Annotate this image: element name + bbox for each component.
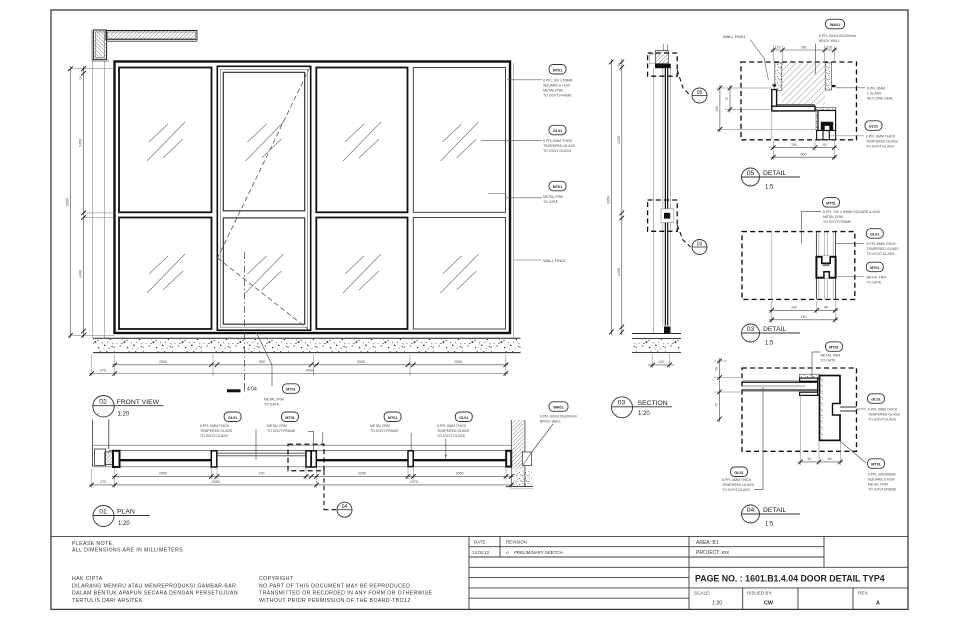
svg-text:FRONT VIEW: FRONT VIEW [117,399,160,406]
svg-text:1970: 1970 [410,480,418,484]
svg-text:TO GOVT.GLASS: TO GOVT.GLASS [722,488,751,492]
svg-text:METAL FRM: METAL FRM [868,482,888,486]
svg-text:PROJECT: xxx: PROJECT: xxx [696,550,730,556]
svg-text:275: 275 [100,369,106,373]
svg-text:BRICK WALL: BRICK WALL [540,419,561,423]
svg-text:14.02.12: 14.02.12 [472,550,490,555]
svg-text:100: 100 [791,306,797,310]
svg-text:1450: 1450 [79,139,83,147]
svg-text:275: 275 [100,480,106,484]
svg-text:40: 40 [824,306,828,310]
svg-text:DALAM BENTUK APAPUN SECARA DE: DALAM BENTUK APAPUN SECARA DENGAN PERSET… [72,591,238,597]
svg-text:TO GATE: TO GATE [867,281,883,285]
svg-text:MT01: MT01 [286,388,295,392]
svg-text:50: 50 [715,367,719,371]
svg-text:790: 790 [259,472,265,476]
svg-text:6 PFL 6MM THICK: 6 PFL 6MM THICK [868,407,898,411]
svg-text:TEMPERED GLASS: TEMPERED GLASS [867,247,900,251]
svg-text:METAL FRM: METAL FRM [823,215,843,219]
svg-text:TO GOVT.FRAME: TO GOVT.FRAME [823,220,852,224]
svg-text:MT01: MT01 [870,266,879,270]
svg-text:ALL DIMENSIONS ARE IN MILLIMET: ALL DIMENSIONS ARE IN MILLIMETERS [72,547,183,553]
svg-text:6 PFL 100x50MM: 6 PFL 100x50MM [868,472,896,476]
svg-text:140: 140 [658,360,664,364]
svg-text:TO GOVT.GLASS: TO GOVT.GLASS [866,144,895,148]
svg-text:TO GATE: TO GATE [543,200,559,204]
svg-text:1400: 1400 [79,270,83,278]
svg-text:METAL FRM: METAL FRM [543,88,563,92]
svg-text:TERTULIS DARI ARSITEK: TERTULIS DARI ARSITEK [72,598,143,604]
svg-text:45: 45 [828,457,832,461]
svg-text:SQUARE & HLW: SQUARE & HLW [543,83,570,87]
svg-text:40: 40 [808,457,812,461]
svg-text:6 PFL 600x100x200mm: 6 PFL 600x100x200mm [540,414,577,418]
svg-text:A: A [506,550,509,555]
svg-text:04: 04 [747,507,755,514]
svg-text:WA01: WA01 [553,406,563,410]
svg-text:6 PFL 600x100x200mm: 6 PFL 600x100x200mm [819,34,856,38]
svg-text:PRELIMINARY SKETCH: PRELIMINARY SKETCH [514,550,563,555]
svg-text:140: 140 [801,315,807,319]
svg-text:03: 03 [747,326,755,333]
svg-text:SECTION: SECTION [638,400,668,407]
svg-text:DETAIL: DETAIL [763,326,787,333]
svg-text:METAL FRM: METAL FRM [543,195,563,199]
svg-text:6 PFL 100 x 50MM: 6 PFL 100 x 50MM [543,78,573,82]
svg-text:WALL FIN01: WALL FIN01 [723,34,746,39]
svg-text:2950: 2950 [606,196,610,204]
svg-text:TEMPERED GLASS: TEMPERED GLASS [200,429,233,433]
svg-text:TO GOVT.GLASS: TO GOVT.GLASS [200,434,229,438]
svg-text:9050: 9050 [306,369,314,373]
svg-text:REVISION: REVISION [506,540,527,545]
svg-text:METAL FRM: METAL FRM [867,276,887,280]
svg-text:1:20: 1:20 [118,521,130,527]
svg-text:TEMPERED GLASS: TEMPERED GLASS [868,412,901,416]
svg-text:METAL FRM: METAL FRM [267,424,287,428]
svg-text:MT01: MT01 [826,201,835,205]
svg-text:L GLASS: L GLASS [867,91,882,95]
svg-text:TO GOVT.GLASS: TO GOVT.GLASS [437,434,466,438]
svg-text:CW: CW [764,601,774,607]
svg-text:DATE: DATE [474,540,485,545]
svg-text:1:5: 1:5 [765,522,774,528]
svg-text:DILARANG MENIRU ATAU MENREPROD: DILARANG MENIRU ATAU MENREPRODUKSI GAMBA… [72,583,236,589]
svg-text:DETAIL: DETAIL [763,507,787,514]
svg-text:TO GOVT.GLASS: TO GOVT.GLASS [867,252,896,256]
svg-text:TO GATE: TO GATE [264,403,280,407]
svg-text:1:20: 1:20 [118,411,130,417]
svg-text:MT01: MT01 [829,346,838,350]
svg-text:6 PFL 6MM THICK: 6 PFL 6MM THICK [543,139,573,143]
svg-text:COPYRIGHT: COPYRIGHT [259,576,294,582]
svg-text:GL01: GL01 [734,471,743,475]
svg-text:PLEASE NOTE.: PLEASE NOTE. [72,541,114,547]
svg-text:50: 50 [79,76,83,80]
svg-text:BRICK WALL: BRICK WALL [819,39,840,43]
svg-text:AREA: B1: AREA: B1 [696,540,719,546]
svg-text:TEMPERED GLASS: TEMPERED GLASS [543,144,576,148]
svg-text:A: A [876,601,880,607]
svg-text:120: 120 [775,45,781,49]
svg-text:TEMPERED GLASS: TEMPERED GLASS [722,483,755,487]
svg-text:2050: 2050 [456,472,464,476]
svg-text:METAL FRM: METAL FRM [370,424,390,428]
svg-text:6 PFL 6MM THICK: 6 PFL 6MM THICK [866,134,896,138]
svg-text:03: 03 [697,241,703,247]
svg-text:2050: 2050 [357,360,365,364]
svg-text:1400: 1400 [617,268,621,276]
svg-text:02: 02 [99,399,107,406]
svg-text:780: 780 [801,45,807,49]
svg-text:TO GOVT.GLASS: TO GOVT.GLASS [543,149,572,153]
svg-text:760: 760 [791,143,797,147]
svg-text:2950: 2950 [66,198,70,206]
svg-text:50: 50 [617,63,621,67]
svg-text:800: 800 [801,152,807,156]
svg-text:6 PFL 6MM THICK: 6 PFL 6MM THICK [437,424,467,428]
svg-text:METAL FRM: METAL FRM [264,398,284,402]
svg-text:MT01: MT01 [553,68,562,72]
svg-text:1:5: 1:5 [765,185,774,191]
svg-text:9050: 9050 [212,480,220,484]
svg-text:6 PFL 6MM THICK: 6 PFL 6MM THICK [867,242,897,246]
svg-text:MT01: MT01 [285,416,294,420]
svg-text:SILICONE SEAL: SILICONE SEAL [867,96,893,100]
svg-text:6 PFL 6MM: 6 PFL 6MM [867,86,885,90]
svg-text:TO GATE: TO GATE [821,358,837,362]
svg-text:TRANSMITTED OR RECORDED IN ANY: TRANSMITTED OR RECORDED IN ANY FORM OR O… [259,591,433,597]
svg-text:MT01: MT01 [553,185,562,189]
svg-text:4.04: 4.04 [247,387,257,393]
svg-text:950: 950 [259,360,265,364]
svg-text:135: 135 [715,106,719,112]
svg-text:MT01: MT01 [388,416,397,420]
svg-text:70: 70 [725,97,729,101]
svg-text:1:20: 1:20 [638,411,650,417]
svg-text:2050: 2050 [159,360,167,364]
svg-text:GL01: GL01 [869,125,878,129]
svg-text:2050: 2050 [159,472,167,476]
svg-text:TEMPERED GLASS: TEMPERED GLASS [437,429,470,433]
svg-text:DETAIL: DETAIL [763,170,787,177]
svg-text:03: 03 [618,400,626,407]
svg-text:01: 01 [99,508,107,515]
svg-text:40: 40 [823,143,827,147]
svg-text:05: 05 [697,90,703,96]
svg-text:MT01: MT01 [871,463,880,467]
svg-text:SCALE:: SCALE: [694,591,710,596]
svg-text:WA01: WA01 [830,23,840,27]
svg-text:1:5: 1:5 [765,341,774,347]
svg-text:2050: 2050 [454,360,462,364]
svg-text:GL01: GL01 [459,416,468,420]
svg-text:75: 75 [715,403,719,407]
svg-text:05: 05 [747,170,755,177]
svg-text:GL01: GL01 [553,129,562,133]
svg-text:TO GOVT.FRAME: TO GOVT.FRAME [267,429,296,433]
svg-text:ISSUED BY:: ISSUED BY: [747,591,773,596]
svg-text:GL01: GL01 [870,233,879,237]
svg-text:TEMPERED GLASS: TEMPERED GLASS [866,139,899,143]
svg-text:1450: 1450 [617,136,621,144]
svg-text:TO GOVT.FRAME: TO GOVT.FRAME [543,93,572,97]
svg-text:04: 04 [342,504,348,510]
svg-text:GL01: GL01 [871,398,880,402]
svg-text:6 PFL 100 x 50MM SQUARE & HLW: 6 PFL 100 x 50MM SQUARE & HLW [823,210,881,214]
svg-text:TO GOVT.FRAME: TO GOVT.FRAME [370,429,399,433]
svg-text:6 PFL 6MM THICK: 6 PFL 6MM THICK [722,478,752,482]
svg-text:GL01: GL01 [228,416,237,420]
svg-text:6 PFL 6MM THICK: 6 PFL 6MM THICK [200,424,230,428]
svg-text:HAK CIPTA: HAK CIPTA [72,576,103,582]
svg-text:PAGE NO. : 1601.B1.4.04 DOOR D: PAGE NO. : 1601.B1.4.04 DOOR DETAIL TYP4 [695,574,885,584]
svg-text:SQUARE & HLW: SQUARE & HLW [868,477,895,481]
svg-text:NO PART OF THIS DOCUMENT MAY B: NO PART OF THIS DOCUMENT MAY BE REPRODUC… [259,583,410,589]
svg-text:REV.: REV. [858,591,868,596]
svg-text:PLAN: PLAN [117,509,135,516]
svg-text:1:20: 1:20 [712,601,722,607]
svg-text:2250: 2250 [358,472,366,476]
svg-text:WALL FIN01: WALL FIN01 [543,258,566,263]
svg-text:METAL FRM: METAL FRM [821,353,841,357]
svg-text:TO GOVT.FRAME: TO GOVT.FRAME [868,487,897,491]
svg-text:120: 120 [827,45,833,49]
svg-text:TO GOVT.GLASS: TO GOVT.GLASS [868,417,897,421]
svg-text:WITHOUT PRIOR PERMISSION OF TH: WITHOUT PRIOR PERMISSION OF THE BOARD-TB… [259,598,411,604]
